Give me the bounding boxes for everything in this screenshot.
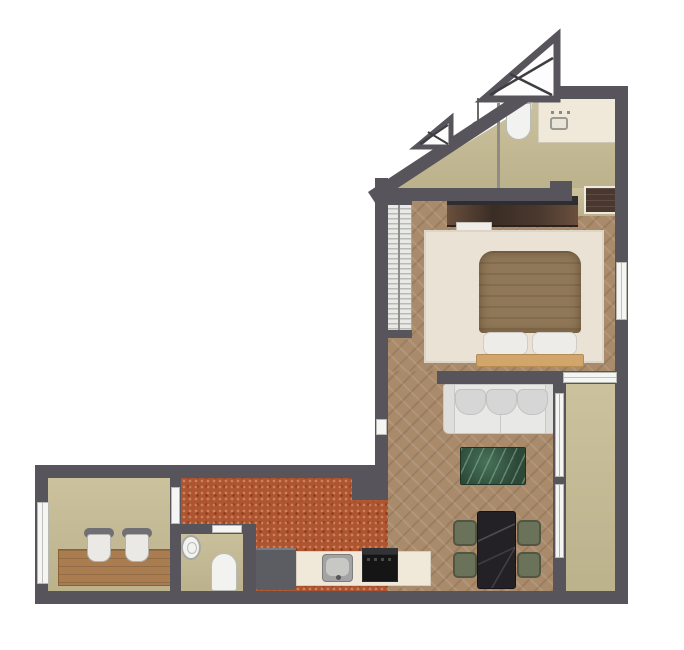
dining-table (477, 511, 516, 589)
living-wall-window (563, 372, 617, 383)
wc-door (212, 525, 242, 533)
dining-chair (517, 520, 541, 546)
coffee-table (460, 447, 526, 485)
balcony-floor (566, 384, 615, 591)
wall-bottom (35, 591, 628, 604)
study-chair-seat (87, 534, 111, 562)
living-left-window (376, 419, 387, 435)
wc-toilet (211, 553, 237, 591)
tall-cabinet (256, 548, 296, 590)
balcony-glass-door (555, 393, 564, 477)
dining-chair (453, 552, 477, 578)
bedroom-side-window (616, 262, 627, 320)
floor-plan (0, 0, 684, 650)
study-side-window (37, 502, 49, 584)
bed-frame (476, 354, 584, 367)
faucet-dots (551, 111, 571, 114)
bed-duvet (479, 251, 581, 333)
study-chair-seat (125, 534, 149, 562)
wall-corner-block (352, 475, 388, 500)
radiator (386, 197, 412, 338)
cooktop (362, 554, 398, 582)
sofa-armrest-left (444, 385, 455, 433)
sofa-cushion (486, 389, 517, 415)
pillow-left (483, 332, 528, 355)
wall-bathroom-bedroom (388, 188, 572, 201)
vanity-counter (538, 99, 615, 143)
kitchen-sink (322, 554, 353, 582)
sofa-cushion (455, 389, 486, 415)
faucet-icon (336, 575, 341, 580)
study-door (171, 487, 180, 524)
wall-wing-top (35, 465, 388, 478)
sofa-cushion (517, 389, 548, 415)
sofa-seat-seam (500, 415, 501, 433)
dining-chair (453, 520, 477, 546)
study-desk (58, 549, 173, 586)
dining-chair (517, 552, 541, 578)
wall-wc-right (243, 524, 256, 591)
wc-basin (181, 535, 201, 560)
wall-stub (550, 181, 572, 201)
pillow-right (532, 332, 577, 355)
balcony-glass-door (555, 484, 564, 558)
wall-right (615, 86, 628, 604)
sofa (443, 384, 557, 434)
vanity-basin (550, 117, 568, 130)
